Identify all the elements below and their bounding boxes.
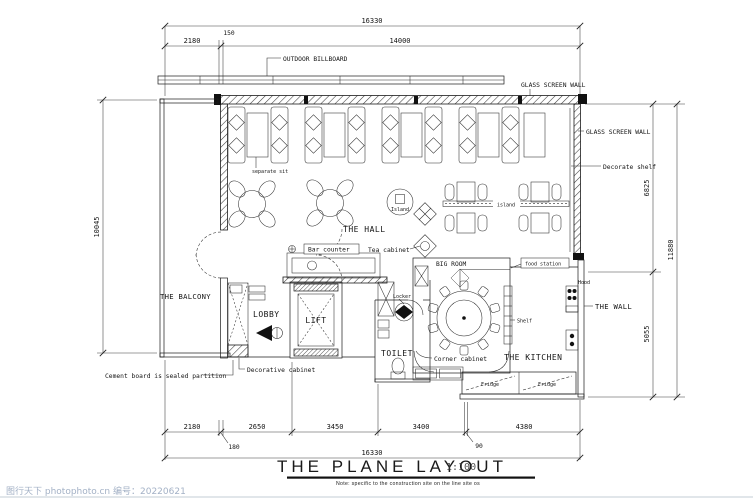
dim-top-total: 16330 xyxy=(361,17,382,25)
dim-bottom-3: 3450 xyxy=(327,423,344,431)
glass-wall-top xyxy=(218,96,580,105)
label-the-wall: THE WALL xyxy=(595,302,632,311)
label-the-hall: THE HALL xyxy=(343,225,386,234)
drawing-note: Note: specific to the construction site … xyxy=(336,481,480,487)
label-decorate-shelf: Decorate shelf xyxy=(603,164,656,171)
label-big-room: BIG ROOM xyxy=(436,261,467,268)
dim-bottom-4: 3400 xyxy=(413,423,430,431)
label-glass-screen-wall-top: GLASS SCREEN WALL xyxy=(521,82,586,89)
label-separate-sit: separate sit xyxy=(252,169,288,175)
label-hood: Hood xyxy=(578,280,590,286)
label-the-kitchen: THE KITCHEN xyxy=(504,353,562,362)
label-the-balcony: THE BALCONY xyxy=(160,292,211,301)
dim-bottom-total: 16330 xyxy=(361,449,382,457)
stove-symbol xyxy=(566,286,578,312)
dim-bottom-2: 2650 xyxy=(249,423,266,431)
label-tea-cabinet: Tea cabinet xyxy=(368,247,410,254)
planter-diamond xyxy=(414,203,437,226)
label-locker: Locker xyxy=(393,294,411,300)
dim-top-main: 14000 xyxy=(389,37,410,45)
floor-plan-svg: 16330 2180 150 14000 2180 2650 3450 3400… xyxy=(0,0,753,500)
outdoor-billboard xyxy=(158,76,504,84)
tea-cabinet-diamond xyxy=(414,235,437,258)
glass-wall-right xyxy=(574,104,581,256)
equipment-box xyxy=(413,367,463,380)
label-toilet: TOILET xyxy=(381,349,413,358)
booth-row xyxy=(228,107,545,163)
label-island-circle: Island xyxy=(391,207,409,213)
dim-top-small: 150 xyxy=(223,30,235,37)
label-cement-board: Cement board is sealed partition xyxy=(105,373,227,380)
dim-right-upper: 6825 xyxy=(643,180,651,197)
label-island-divider: island xyxy=(497,203,515,209)
dim-bottom-1s: 180 xyxy=(228,444,240,451)
kitchen-shelf xyxy=(504,286,512,344)
label-food-station: food station xyxy=(525,262,561,268)
dim-bottom-1: 2180 xyxy=(184,423,201,431)
dim-bottom-4s: 90 xyxy=(475,443,483,450)
balcony-wall xyxy=(221,104,228,230)
bigroom-round-table xyxy=(428,281,501,355)
dim-left-total: 10045 xyxy=(93,216,101,237)
label-decorative-cabinet: Decorative cabinet xyxy=(247,367,315,374)
dimension-layer: 16330 2180 150 14000 2180 2650 3450 3400… xyxy=(93,17,685,461)
hall-round-table-2 xyxy=(304,177,357,230)
locker-symbol xyxy=(395,303,413,321)
label-lift: LIFT xyxy=(305,316,326,325)
dim-right-total: 11880 xyxy=(667,239,675,260)
title-block: THE PLANE LAYOUT 1:100 Note: specific to… xyxy=(277,457,535,487)
dim-bottom-5: 4380 xyxy=(516,423,533,431)
label-fridge-left: Fridge xyxy=(481,382,499,388)
furniture-layer xyxy=(226,107,578,380)
service-shaft xyxy=(228,283,265,357)
lobby-door-symbol xyxy=(256,325,283,341)
sink-symbol xyxy=(566,330,578,350)
label-fridge-right: Fridge xyxy=(538,382,556,388)
watermark-text: 图行天下 photophoto.cn 编号：20220621 xyxy=(6,485,186,497)
drawing-scale: 1:100 xyxy=(446,462,476,473)
label-glass-screen-wall-right: GLASS SCREEN WALL xyxy=(586,129,651,136)
dim-right-lower: 5055 xyxy=(643,326,651,343)
label-bar-counter: Bar counter xyxy=(308,247,350,254)
hall-round-table-1 xyxy=(226,178,279,231)
dim-top-left: 2180 xyxy=(184,37,201,45)
label-lobby: LOBBY xyxy=(253,310,280,319)
label-shelf: Shelf xyxy=(517,319,532,325)
label-corner-cabinet: Corner cabinet xyxy=(434,356,487,363)
drawing-canvas: 16330 2180 150 14000 2180 2650 3450 3400… xyxy=(0,0,753,500)
label-outdoor-billboard: OUTDOOR BILLBOARD xyxy=(283,56,348,63)
